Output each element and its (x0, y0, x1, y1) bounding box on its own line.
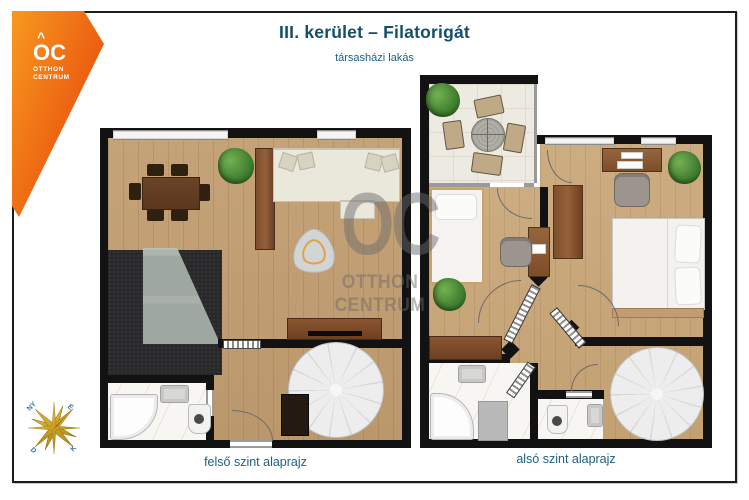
tv-sideboard (287, 318, 382, 340)
table-cross-line (487, 119, 488, 151)
bedroom-window-right (641, 137, 676, 145)
page-title: III. kerület – Filatorigát (0, 22, 749, 43)
bed-bench (612, 308, 704, 318)
bedroom-plant (668, 151, 701, 184)
kids-room-plant (433, 278, 466, 311)
kids-office-chair (500, 237, 532, 267)
caption-lower-floor: alsó szint alaprajz (420, 452, 712, 466)
floorplan-lower (420, 75, 712, 448)
compass-rose-icon: É K D NY (22, 396, 86, 460)
terrace-chair (471, 152, 503, 176)
stair-zone-wall-top (575, 337, 703, 346)
wc-wall-left (530, 363, 538, 440)
tv (308, 331, 362, 336)
caption-upper-floor: felső szint alaprajz (100, 455, 411, 469)
sofa-pillow (297, 152, 316, 171)
terrace-chair (442, 120, 465, 150)
rug (288, 228, 340, 276)
dining-chair (171, 164, 188, 176)
bed-pillow (435, 194, 477, 220)
dining-chair (147, 164, 164, 176)
terrace-door (490, 183, 524, 187)
shower-mat (478, 401, 508, 441)
terrace-railing-right (534, 84, 537, 183)
sofa-pillow (380, 153, 400, 173)
wc-toilet (547, 405, 568, 434)
sofa-pillow (278, 152, 298, 172)
bathroom2-sink (458, 365, 486, 383)
tall-cabinet (255, 148, 275, 250)
page-subtitle: társasházi lakás (0, 52, 749, 64)
entry-door (230, 440, 272, 448)
table-cross-line (472, 134, 504, 135)
dining-chair (147, 209, 164, 221)
plant (218, 148, 254, 184)
sliding-door (223, 340, 261, 349)
dining-table (142, 177, 200, 210)
desk-papers (532, 244, 546, 254)
spiral-staircase (610, 347, 704, 441)
terrace-plant (426, 83, 460, 117)
blanket-fold (667, 219, 668, 309)
terrace-table (471, 118, 505, 152)
bedroom-window-left (545, 137, 614, 145)
dining-chair (129, 183, 141, 200)
floorplan-upper (100, 128, 411, 448)
office-chair (614, 173, 650, 207)
living-window-right (317, 130, 356, 140)
double-bed (612, 218, 705, 310)
bedroom-desk (602, 148, 662, 172)
wc-sink (587, 404, 603, 427)
bathroom-sink (160, 385, 189, 403)
bathroom-wall-top (108, 375, 214, 383)
sideboard (429, 336, 502, 360)
desk-keyboard (617, 161, 643, 169)
logo-line2: CENTRUM (33, 75, 70, 82)
compass-south-label: D (29, 446, 38, 455)
desk-papers (621, 152, 643, 159)
single-bed (430, 188, 484, 284)
sofa (273, 148, 400, 202)
flyer-page: ^ OC OTTHON CENTRUM III. kerület – Filat… (0, 0, 749, 500)
wc-door (566, 391, 592, 398)
logo-line1: OTTHON (33, 67, 64, 74)
dark-cabinet (281, 394, 309, 436)
compass-east-label: K (69, 445, 78, 454)
toilet-bowl (552, 416, 562, 426)
living-window-left (113, 130, 228, 140)
dining-chair (171, 209, 188, 221)
bed-pillow (674, 266, 702, 305)
wardrobe (553, 185, 583, 259)
toilet (188, 404, 211, 434)
outer-wall-left (420, 75, 429, 448)
bed-pillow (674, 224, 702, 263)
outer-wall-bottom (420, 439, 712, 448)
toilet-bowl (194, 414, 204, 424)
sofa-chaise (340, 200, 375, 219)
